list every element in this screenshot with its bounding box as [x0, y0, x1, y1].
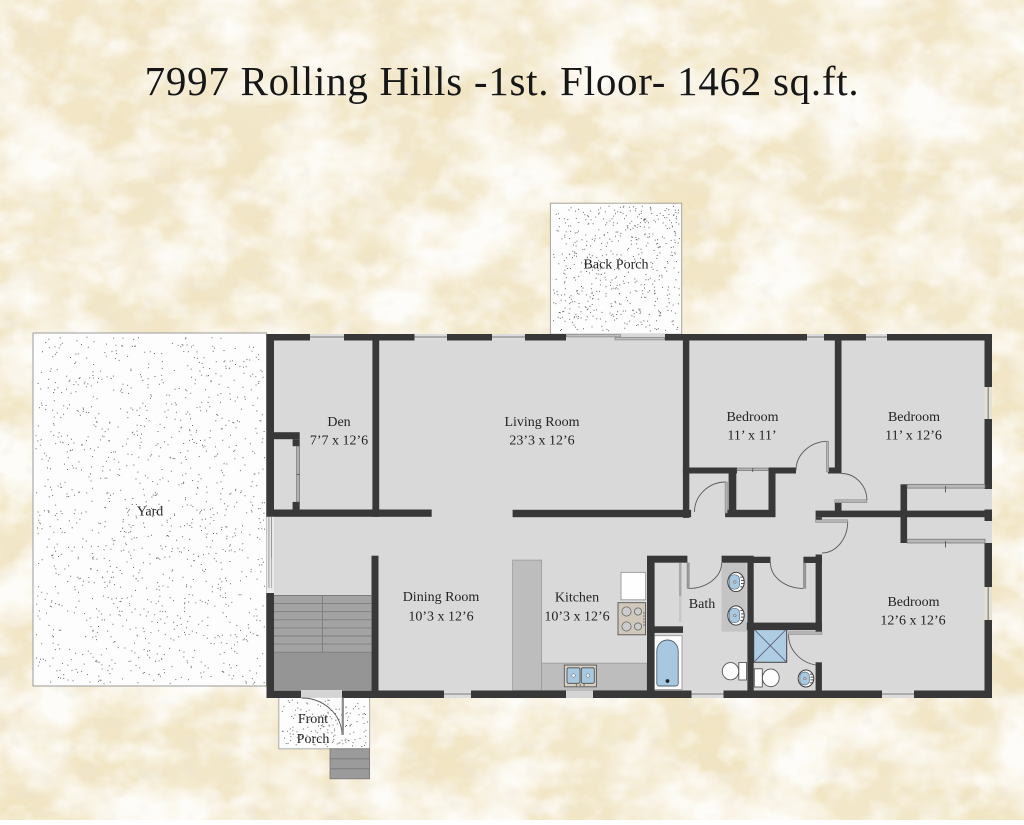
svg-text:11’ x 12’6: 11’ x 12’6: [885, 429, 942, 444]
svg-text:7997 Rolling Hills -1st. Floor: 7997 Rolling Hills -1st. Floor- 1462 sq.…: [145, 58, 860, 104]
svg-text:Kitchen: Kitchen: [555, 591, 599, 606]
svg-text:Back Porch: Back Porch: [584, 258, 649, 273]
svg-text:Living Room: Living Room: [504, 415, 579, 430]
svg-text:Front: Front: [298, 712, 328, 727]
svg-text:7’7 x 12’6: 7’7 x 12’6: [310, 434, 368, 449]
svg-text:Bedroom: Bedroom: [887, 595, 939, 610]
svg-text:Yard: Yard: [137, 505, 164, 520]
svg-text:Bedroom: Bedroom: [726, 410, 778, 425]
svg-text:10’3 x 12’6: 10’3 x 12’6: [408, 610, 473, 625]
svg-text:11’ x 11’: 11’ x 11’: [727, 429, 776, 444]
svg-text:Dining Room: Dining Room: [403, 590, 480, 605]
svg-text:23’3 x 12’6: 23’3 x 12’6: [509, 434, 574, 449]
svg-text:Bath: Bath: [689, 597, 715, 612]
svg-text:10’3 x 12’6: 10’3 x 12’6: [544, 610, 609, 625]
svg-text:12’6 x 12’6: 12’6 x 12’6: [880, 614, 945, 629]
svg-text:Porch: Porch: [297, 732, 330, 747]
svg-text:Bedroom: Bedroom: [888, 410, 940, 425]
svg-text:Den: Den: [327, 415, 350, 430]
